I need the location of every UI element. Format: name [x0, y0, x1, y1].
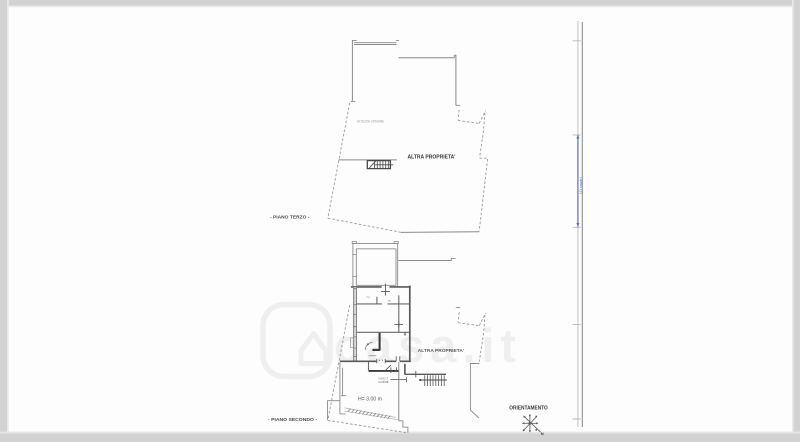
svg-text:H= 3.00 m: H= 3.00 m	[358, 397, 382, 403]
svg-text:10 metri: 10 metri	[579, 177, 585, 194]
svg-text:scala: scala	[378, 380, 386, 384]
svg-text:wc: wc	[388, 299, 392, 303]
svg-text:ALTRA PROPRIETA': ALTRA PROPRIETA'	[408, 154, 456, 160]
svg-text:- PIANO SECONDO -: - PIANO SECONDO -	[268, 417, 317, 423]
svg-text:N: N	[541, 431, 544, 436]
svg-text:ALTEZZA COMUNE: ALTEZZA COMUNE	[357, 119, 384, 123]
svg-text:rip.: rip.	[367, 295, 371, 299]
svg-text:ALTRA PROPRIETA': ALTRA PROPRIETA'	[418, 348, 464, 354]
svg-text:ORIENTAMENTO: ORIENTAMENTO	[509, 405, 548, 411]
svg-text:- PIANO TERZO -: - PIANO TERZO -	[270, 214, 310, 220]
